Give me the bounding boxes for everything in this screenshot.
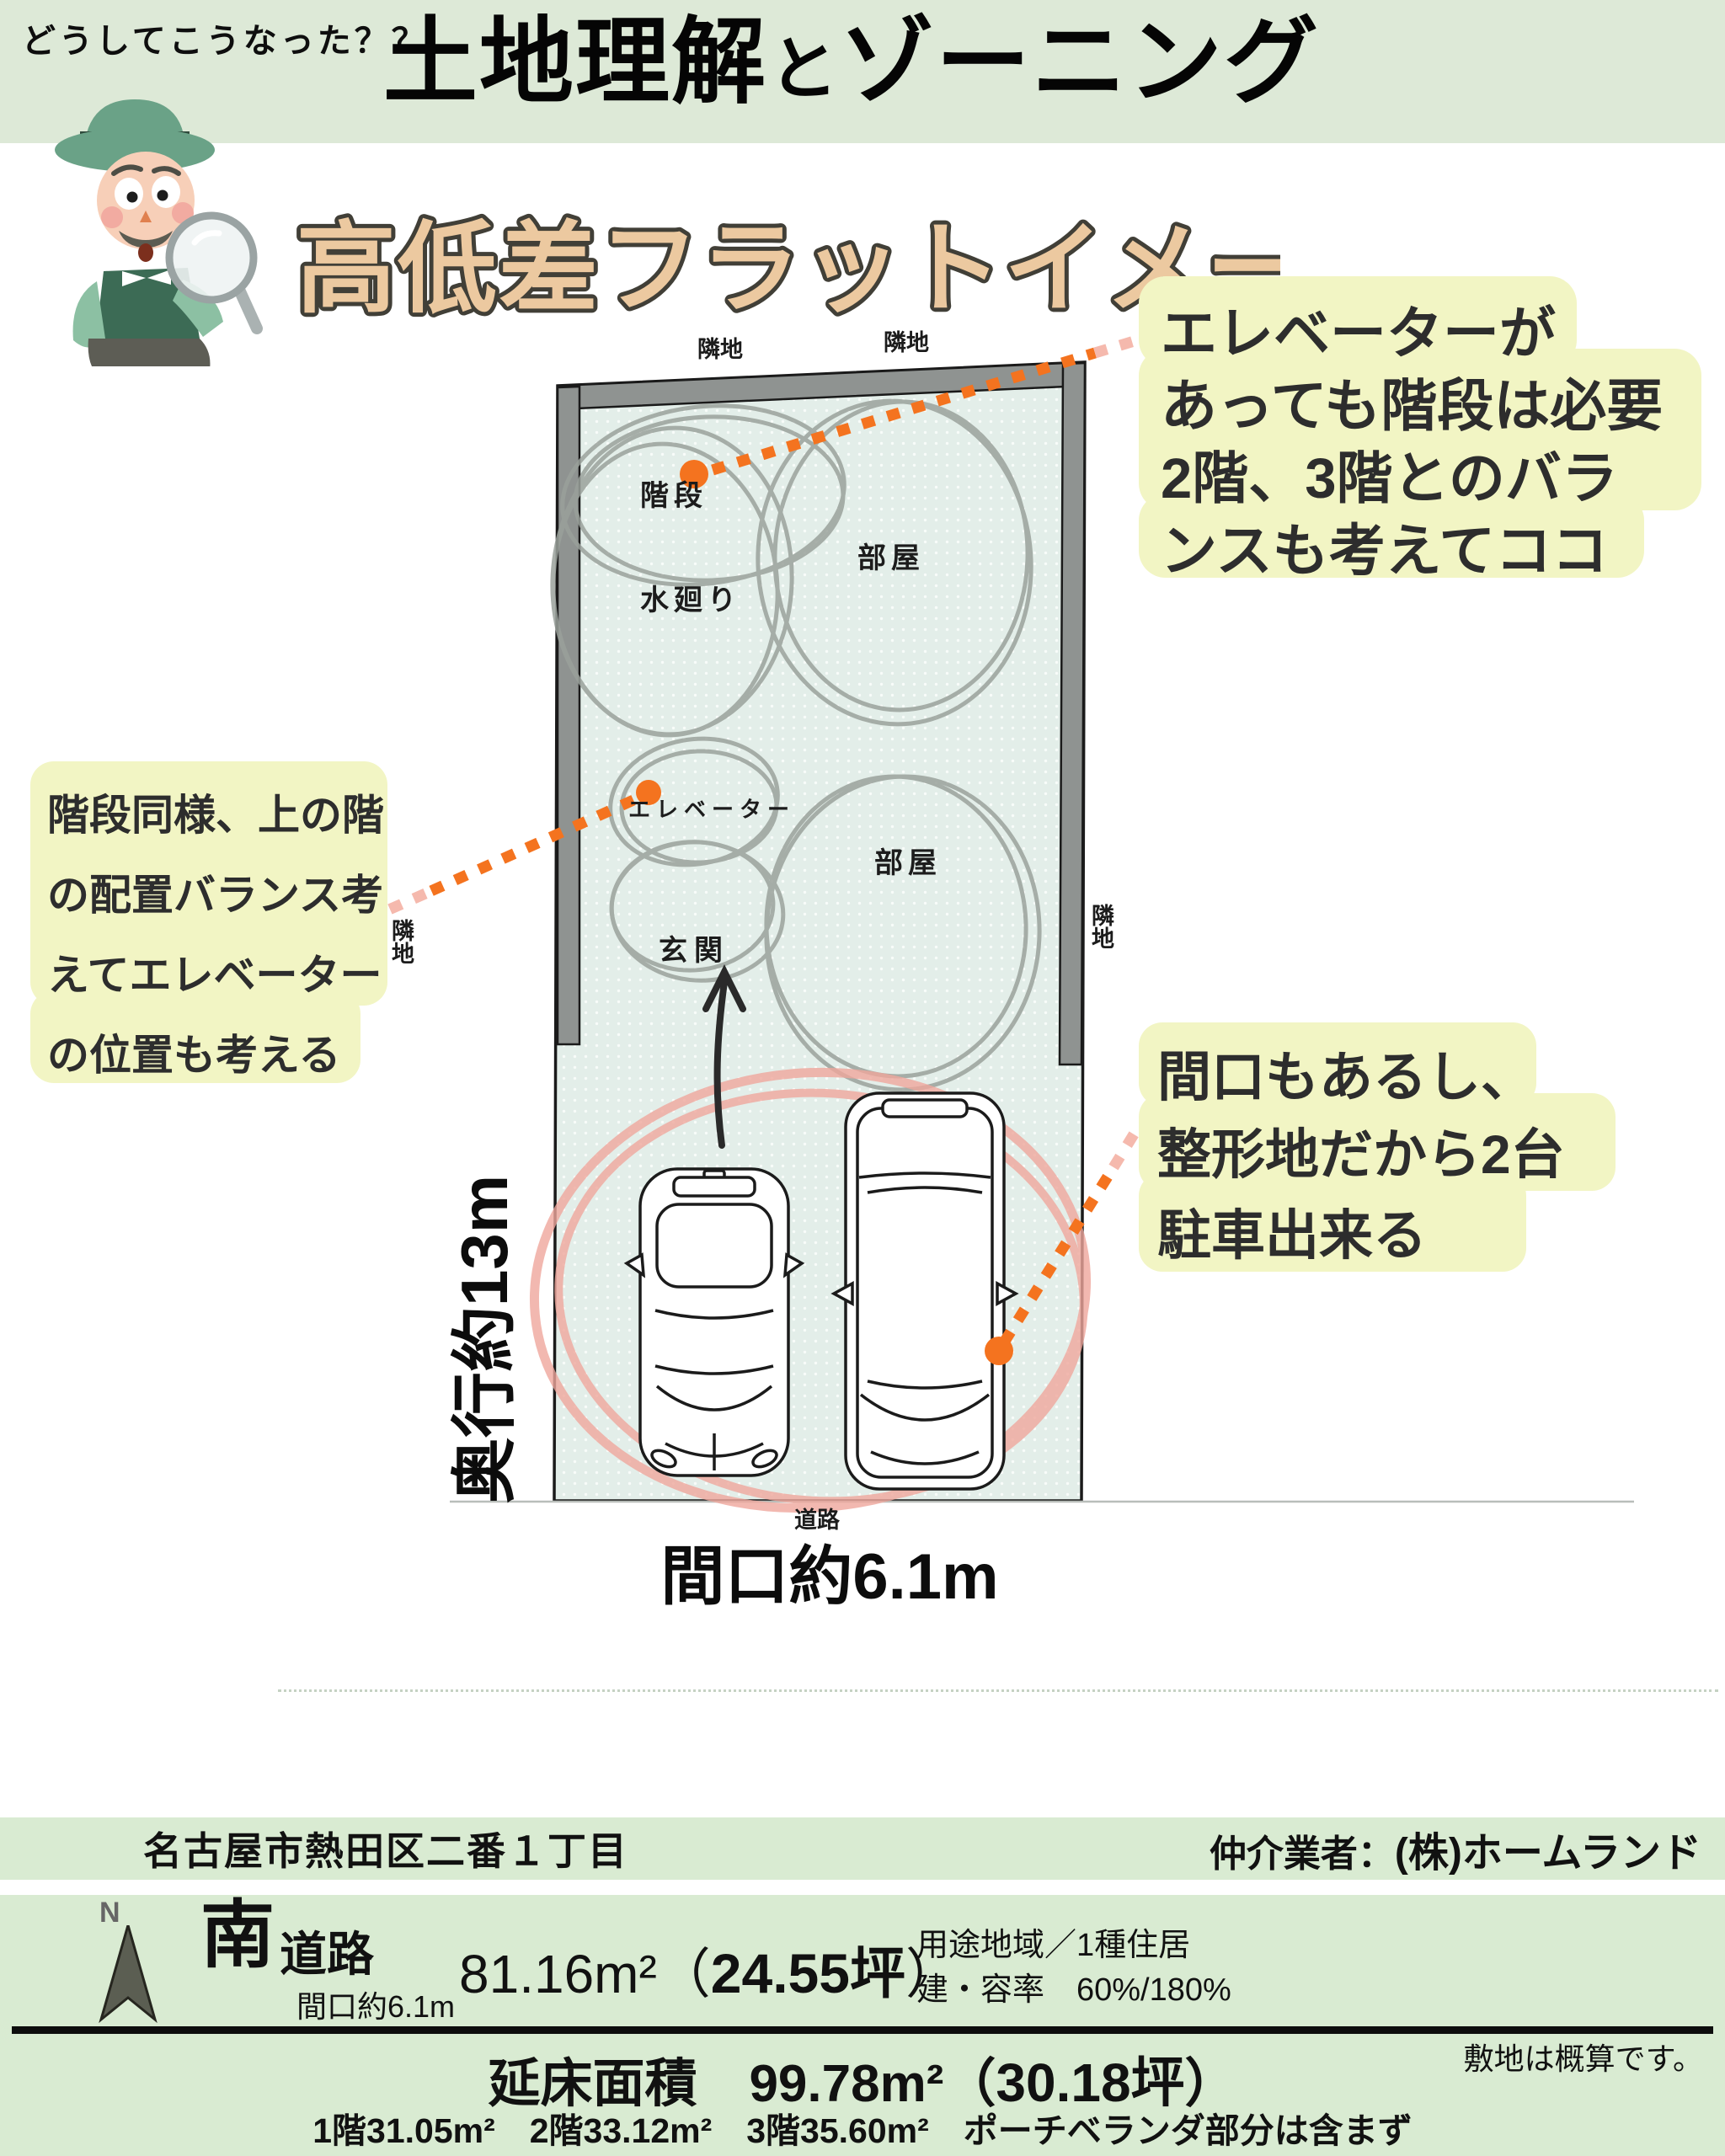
room-label-entrance: 玄関	[659, 935, 729, 967]
neighbor-label-top-right: 隣地	[884, 330, 929, 355]
note-line: の位置も考える	[47, 1022, 341, 1082]
floor-breakdown: 1階31.05m² 2階33.12m² 3階35.60m² ポーチベランダ部分は…	[0, 2102, 1725, 2153]
room-label-elevator: エレベーター	[628, 797, 795, 822]
agent-info: 仲介業者：(株)ホームランド	[1210, 1819, 1701, 1878]
north-arrow-icon	[94, 1925, 162, 2026]
note-line: 駐車出来る	[1157, 1193, 1427, 1270]
note-line: 階段同様、上の階	[47, 782, 384, 842]
note-line: の配置バランス考	[47, 862, 383, 922]
note-bubble-parking: 間口もあるし、 整形地だから2台 駐車出来る	[1139, 1022, 1627, 1275]
property-address: 名古屋市熱田区二番１丁目	[143, 1821, 628, 1876]
land-area-tsubo: 24.55坪	[711, 1942, 905, 2004]
section-separator	[278, 1689, 1718, 1692]
zoning-info: 用途地域／1種住居 建・容率 60%/180%	[916, 1924, 1231, 2013]
car-minivan-topview	[834, 1093, 1016, 1489]
note-bubble-elevator: 階段同様、上の階 の配置バランス考 えてエレベーター の位置も考える	[30, 761, 393, 1086]
agent-label: 仲介業者：	[1210, 1833, 1395, 1875]
car-compact-topview	[627, 1169, 802, 1476]
room-label-upper-room: 部屋	[857, 542, 925, 574]
marker-dot-parking	[985, 1337, 1013, 1365]
road-label: 道路	[794, 1507, 841, 1533]
frontage-note: 間口約6.1m	[296, 1983, 455, 2026]
note-line: あっても階段は必要	[1161, 360, 1663, 442]
room-label-stairs: 階段	[640, 479, 708, 512]
road-direction-main: 南	[200, 1898, 275, 1972]
leader-line-elevator-tip	[389, 894, 425, 910]
survey-note: 敷地は概算です。	[1464, 2035, 1703, 2079]
note-line: 整形地だから2台	[1157, 1112, 1565, 1189]
neighbor-label-top-left: 隣地	[697, 337, 743, 362]
footer-detail-band: N 南 道路 間口約6.1m 81.16m²（24.55坪） 用途地域／1種住居…	[0, 1895, 1725, 2156]
zoning-use: 用途地域／1種住居	[916, 1924, 1231, 1968]
zoning-ratio: 建・容率 60%/180%	[916, 1968, 1231, 2013]
note-line: エレベーターが	[1161, 288, 1556, 370]
note-bubble-stairs: エレベーターが あっても階段は必要 2階、3階とのバラ ンスも考えてココ	[1139, 276, 1712, 579]
depth-dimension: 奥行約13m	[447, 1175, 521, 1503]
frontage-dimension: 間口約6.1m	[660, 1541, 998, 1613]
neighbor-label-right: 隣地	[1088, 904, 1114, 949]
agent-name: (株)ホームランド	[1395, 1831, 1701, 1876]
room-label-lower-room: 部屋	[874, 847, 942, 879]
room-label-water: 水廻り	[640, 584, 741, 616]
road-direction-sub: 道路	[280, 1917, 374, 1985]
note-line: えてエレベーター	[47, 942, 382, 1002]
leader-line-parking-tip	[1114, 1123, 1140, 1167]
note-line: 間口もあるし、	[1157, 1034, 1535, 1112]
footer-address-band: 名古屋市熱田区二番１丁目 仲介業者：(株)ホームランド	[0, 1817, 1725, 1880]
leader-line-stairs-tip	[1095, 338, 1146, 353]
land-area-value: 81.16m²（	[459, 1944, 711, 2004]
wall-right	[1060, 363, 1085, 1065]
land-area: 81.16m²（24.55坪）	[459, 1929, 959, 2009]
footer-divider	[12, 2026, 1713, 2034]
note-line: 2階、3階とのバラ	[1161, 433, 1618, 515]
flyer-page: どうしてこうなった？？ 土地理解 と ゾーニング	[0, 0, 1725, 2156]
note-line: ンスも考えてココ	[1161, 505, 1608, 587]
